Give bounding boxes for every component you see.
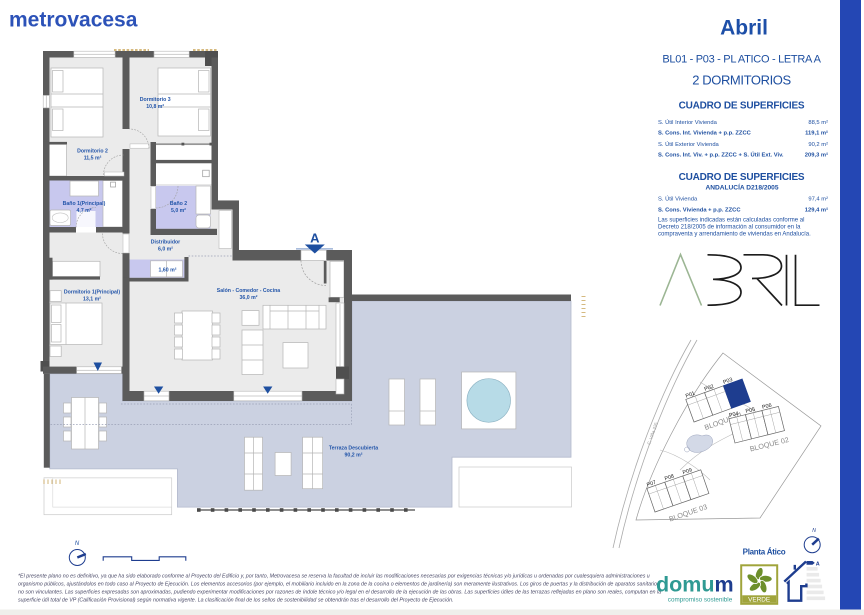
svg-text:ANDALUCÍA D218/2005: ANDALUCÍA D218/2005 (705, 183, 778, 192)
svg-text:organismo públicos, ajustándol: organismo públicos, ajustándolos en todo… (18, 582, 660, 588)
svg-text:Dormitorio 3: Dormitorio 3 (140, 97, 171, 103)
svg-text:metrovacesa: metrovacesa (9, 9, 138, 32)
svg-text:6,0 m²: 6,0 m² (158, 246, 173, 252)
svg-text:N: N (75, 541, 80, 547)
svg-text:90,2 m²: 90,2 m² (808, 142, 828, 148)
svg-text:36,0 m²: 36,0 m² (240, 295, 258, 301)
svg-text:119,1 m²: 119,1 m² (805, 130, 828, 137)
svg-text:13,1 m²: 13,1 m² (83, 296, 101, 302)
svg-text:superficie útil total de VP (C: superficie útil total de VP (Calificació… (18, 598, 454, 604)
svg-text:CUADRO DE SUPERFICIES: CUADRO DE SUPERFICIES (679, 172, 805, 183)
svg-text:no son vinculantes. Las superf: no son vinculantes. Las superficies expr… (18, 590, 661, 596)
svg-text:88,5 m²: 88,5 m² (808, 120, 828, 126)
svg-text:97,4 m²: 97,4 m² (808, 196, 828, 202)
svg-text:Planta Ático: Planta Ático (743, 548, 786, 557)
svg-text:Dormitorio 1(Principal): Dormitorio 1(Principal) (64, 290, 120, 296)
svg-text:129,4 m²: 129,4 m² (805, 207, 828, 214)
svg-text:VERDE: VERDE (748, 597, 770, 604)
svg-text:10,8 m²: 10,8 m² (146, 104, 164, 110)
svg-text:4,7 m²: 4,7 m² (77, 208, 92, 214)
svg-text:11,5 m²: 11,5 m² (84, 155, 102, 161)
svg-text:Terraza Descubierta: Terraza Descubierta (329, 446, 378, 452)
svg-text:S. Cons. Int. Viv. + p.p. ZZCC: S. Cons. Int. Viv. + p.p. ZZCC + S. Útil… (658, 152, 784, 159)
svg-text:S. Útil Exterior Vivienda: S. Útil Exterior Vivienda (658, 141, 720, 148)
svg-text:A: A (310, 231, 320, 246)
svg-text:compromiso sostenible: compromiso sostenible (668, 597, 733, 604)
svg-text:5,0 m²: 5,0 m² (171, 208, 186, 214)
svg-text:Baño 2: Baño 2 (170, 201, 187, 207)
svg-text:Abril: Abril (720, 17, 768, 40)
svg-text:CUADRO DE SUPERFICIES: CUADRO DE SUPERFICIES (679, 101, 805, 112)
svg-text:Salón - Comedor - Cocina: Salón - Comedor - Cocina (217, 288, 281, 294)
svg-text:Distribuidor: Distribuidor (151, 240, 180, 246)
svg-text:90,2 m²: 90,2 m² (345, 452, 363, 458)
svg-text:S. Cons. Int. Vivienda + p.p.: S. Cons. Int. Vivienda + p.p. ZZCC (658, 131, 752, 137)
svg-text:domum: domum (656, 573, 734, 597)
svg-text:Las superficies indicadas está: Las superficies indicadas están calculad… (658, 218, 804, 224)
svg-text:S. Cons. Vivienda + p.p. ZZCC: S. Cons. Vivienda + p.p. ZZCC (658, 208, 741, 214)
svg-text:*El presente plano no es defin: *El presente plano no es definitivo, ya … (18, 574, 650, 580)
svg-text:209,3 m²: 209,3 m² (805, 152, 828, 159)
svg-text:A: A (816, 561, 820, 567)
svg-text:Dormitorio 2: Dormitorio 2 (77, 149, 108, 155)
svg-text:BL01 - P03 - PL ATICO - LETRA: BL01 - P03 - PL ATICO - LETRA A (662, 54, 821, 66)
svg-text:Baño 1(Principal): Baño 1(Principal) (63, 201, 106, 207)
svg-text:1,60 m²: 1,60 m² (159, 268, 177, 274)
svg-text:S. Útil Interior Vivienda: S. Útil Interior Vivienda (658, 119, 718, 126)
svg-text:S. Útil Vivienda: S. Útil Vivienda (658, 195, 698, 202)
svg-text:N: N (812, 528, 816, 534)
svg-text:compraventa y arrendamiento de: compraventa y arrendamiento de viviendas… (658, 232, 811, 238)
svg-text:2 DORMITORIOS: 2 DORMITORIOS (692, 73, 791, 88)
svg-text:Decreto 218/2005 de informació: Decreto 218/2005 de información al consu… (658, 225, 801, 231)
